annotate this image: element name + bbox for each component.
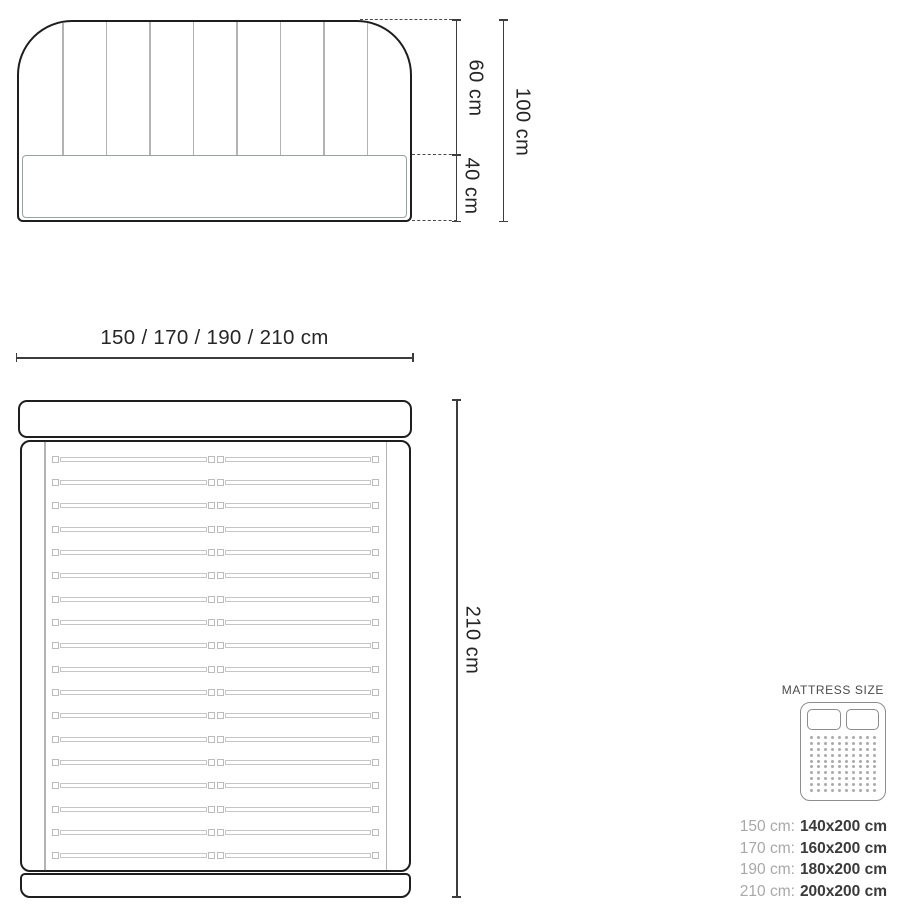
tufting-dot <box>810 777 813 780</box>
slat-bar <box>60 690 207 695</box>
tufting-dot <box>838 742 841 745</box>
tufting-dot <box>852 760 855 763</box>
slat-center-cap <box>208 736 215 743</box>
slat-bar <box>60 527 207 532</box>
tufting-dot <box>824 765 827 768</box>
tufting-dot <box>831 760 834 763</box>
tufting-dot <box>852 777 855 780</box>
tufting-dot <box>831 783 834 786</box>
tufting-dot <box>845 777 848 780</box>
slat-end-cap <box>52 456 59 463</box>
tufting-dot <box>838 754 841 757</box>
tufting-dot <box>845 760 848 763</box>
tufting-dot <box>824 771 827 774</box>
bed-slat <box>52 478 379 486</box>
tufting-dot <box>810 771 813 774</box>
slat-area <box>52 455 379 860</box>
slat-end-cap <box>52 666 59 673</box>
slat-end-cap <box>372 806 379 813</box>
tufting-dot <box>873 765 876 768</box>
slat-bar <box>60 667 207 672</box>
tufting-dot <box>838 771 841 774</box>
pillow-icon <box>846 709 880 730</box>
dimension-tick <box>412 353 414 362</box>
bed-slat <box>52 618 379 626</box>
tufting-dot <box>866 742 869 745</box>
slat-center-cap <box>217 456 224 463</box>
dimension-line-60-40 <box>456 20 458 222</box>
slat-center-cap <box>208 642 215 649</box>
slat-center-cap <box>208 596 215 603</box>
tufting-dot <box>810 765 813 768</box>
bed-width-label: 150 cm: <box>740 818 795 835</box>
tufting-dot <box>866 736 869 739</box>
tufting-dot <box>859 754 862 757</box>
slat-center-cap <box>217 666 224 673</box>
slat-center-cap <box>208 479 215 486</box>
tufting-dot <box>845 748 848 751</box>
tufting-dot <box>824 789 827 792</box>
slat-center-cap <box>217 549 224 556</box>
mattress-size-row: 150 cm:140x200 cm <box>700 816 887 838</box>
mattress-dimensions: 160x200 cm <box>800 840 887 857</box>
tufting-dot <box>831 777 834 780</box>
tufting-dot <box>831 736 834 739</box>
tufting-dot <box>859 789 862 792</box>
bed-slat <box>52 642 379 650</box>
tufting-dot <box>845 742 848 745</box>
tufting-dot <box>852 789 855 792</box>
slat-bar <box>225 667 372 672</box>
slat-bar <box>225 737 372 742</box>
bed-slat <box>52 829 379 837</box>
slat-center-cap <box>217 712 224 719</box>
slat-bar <box>60 457 207 462</box>
slat-end-cap <box>372 572 379 579</box>
tufting-dot <box>873 760 876 763</box>
headboard-top-view <box>18 400 412 438</box>
slat-center-cap <box>208 456 215 463</box>
slat-end-cap <box>52 549 59 556</box>
tufting-dot <box>817 777 820 780</box>
dimension-tick <box>452 221 461 223</box>
mattress-size-row: 170 cm:160x200 cm <box>700 838 887 860</box>
bed-slat <box>52 548 379 556</box>
tufting-dot <box>838 748 841 751</box>
tufting-dot <box>824 754 827 757</box>
tufting-dot <box>838 789 841 792</box>
tufting-dot <box>838 783 841 786</box>
extension-line-bottom <box>412 220 457 221</box>
dim-label-upper-height: 60 cm <box>464 60 487 117</box>
footboard-top-view <box>20 873 411 898</box>
tufting-dot <box>817 771 820 774</box>
tufting-dot <box>845 736 848 739</box>
slat-bar <box>60 550 207 555</box>
tufting-dot <box>817 754 820 757</box>
bed-slat <box>52 595 379 603</box>
dimension-tick <box>452 896 461 898</box>
slat-end-cap <box>372 642 379 649</box>
tufting-dot <box>817 789 820 792</box>
slat-end-cap <box>52 619 59 626</box>
slat-center-cap <box>208 549 215 556</box>
slat-end-cap <box>52 479 59 486</box>
slat-bar <box>225 690 372 695</box>
tufting-dot <box>866 777 869 780</box>
tufting-dot <box>873 748 876 751</box>
tufting-dot <box>817 760 820 763</box>
slat-bar <box>225 620 372 625</box>
slat-bar <box>60 713 207 718</box>
tufting-dot <box>866 760 869 763</box>
bed-base-band <box>22 155 407 218</box>
tufting-dot <box>845 783 848 786</box>
bed-slat <box>52 735 379 743</box>
tufting-dot <box>824 760 827 763</box>
slat-center-cap <box>217 479 224 486</box>
tufting-dot <box>831 771 834 774</box>
slat-bar <box>60 853 207 858</box>
pillow-icon <box>807 709 841 730</box>
tufting-dot <box>817 736 820 739</box>
tufting-dot <box>859 777 862 780</box>
slat-end-cap <box>52 736 59 743</box>
slat-center-cap <box>208 852 215 859</box>
slat-bar <box>60 807 207 812</box>
dimension-tick <box>16 353 18 362</box>
tufting-dot <box>810 789 813 792</box>
slat-end-cap <box>52 689 59 696</box>
tufting-dot <box>831 742 834 745</box>
slat-center-cap <box>217 642 224 649</box>
slat-end-cap <box>52 806 59 813</box>
slat-bar <box>60 760 207 765</box>
headboard-channel-line <box>106 22 108 157</box>
slat-center-cap <box>217 689 224 696</box>
dimension-line-210 <box>456 400 458 897</box>
slat-center-cap <box>208 689 215 696</box>
tufting-dot <box>859 742 862 745</box>
tufting-dot <box>859 748 862 751</box>
dimension-tick <box>452 154 461 156</box>
slat-bar <box>225 457 372 462</box>
tufting-dot <box>831 765 834 768</box>
tufting-dot <box>845 765 848 768</box>
tufting-dot <box>810 736 813 739</box>
bed-slat <box>52 758 379 766</box>
tufting-dot <box>810 748 813 751</box>
tufting-dot <box>859 771 862 774</box>
tufting-dot <box>838 777 841 780</box>
tufting-dot <box>852 742 855 745</box>
slat-end-cap <box>52 572 59 579</box>
slat-center-cap <box>208 526 215 533</box>
tufting-dot <box>873 789 876 792</box>
side-rail-right <box>386 442 388 870</box>
slat-bar <box>225 597 372 602</box>
bed-slat <box>52 782 379 790</box>
bed-width-label: 170 cm: <box>740 840 795 857</box>
slat-bar <box>225 527 372 532</box>
slat-bar <box>60 573 207 578</box>
tufting-dot <box>810 783 813 786</box>
slat-end-cap <box>52 852 59 859</box>
tufting-dot <box>873 771 876 774</box>
tufting-dot <box>852 783 855 786</box>
tufting-dot <box>859 765 862 768</box>
bed-width-label: 190 cm: <box>740 861 795 878</box>
tufting-dot <box>866 754 869 757</box>
slat-end-cap <box>372 596 379 603</box>
slat-end-cap <box>372 712 379 719</box>
double-mattress-icon <box>800 702 886 801</box>
dim-label-length: 210 cm <box>461 606 484 675</box>
tufting-dot <box>824 777 827 780</box>
slat-end-cap <box>372 759 379 766</box>
side-rail-left <box>44 442 46 870</box>
tufting-dot <box>873 742 876 745</box>
dimension-line-100 <box>503 20 505 222</box>
slat-bar <box>225 503 372 508</box>
tufting-dot <box>873 777 876 780</box>
slat-end-cap <box>372 736 379 743</box>
tufting-dot <box>852 748 855 751</box>
slat-bar <box>60 620 207 625</box>
tufting-dot <box>824 742 827 745</box>
tufting-dot <box>838 736 841 739</box>
dim-label-lower-height: 40 cm <box>460 158 483 215</box>
slat-center-cap <box>208 502 215 509</box>
tufting-dot <box>810 760 813 763</box>
bed-frame-top-view <box>20 440 411 872</box>
slat-bar <box>225 643 372 648</box>
tufting-dot <box>824 748 827 751</box>
slat-center-cap <box>208 806 215 813</box>
tufting-dot <box>824 736 827 739</box>
slat-bar <box>225 807 372 812</box>
headboard-channel-line <box>193 22 195 157</box>
slat-center-cap <box>217 502 224 509</box>
bed-dimension-diagram: 60 cm 40 cm 100 cm 150 / 170 / 190 / 210… <box>0 0 900 920</box>
tufting-dot <box>852 765 855 768</box>
tufting-dot <box>873 783 876 786</box>
slat-center-cap <box>217 736 224 743</box>
headboard-channel-line <box>149 22 151 157</box>
bed-slat <box>52 455 379 463</box>
slat-end-cap <box>372 689 379 696</box>
bed-slat <box>52 852 379 860</box>
dim-label-widths: 150 / 170 / 190 / 210 cm <box>16 326 413 350</box>
slat-center-cap <box>208 572 215 579</box>
slat-bar <box>225 550 372 555</box>
tufting-dot <box>866 789 869 792</box>
slat-center-cap <box>217 596 224 603</box>
mattress-size-list: 150 cm:140x200 cm 170 cm:160x200 cm 190 … <box>700 816 887 903</box>
slat-end-cap <box>372 782 379 789</box>
slat-center-cap <box>208 619 215 626</box>
mattress-dimensions: 140x200 cm <box>800 818 887 835</box>
headboard-front-elevation <box>17 20 412 222</box>
mattress-size-title: MATTRESS SIZE <box>742 683 884 697</box>
headboard-channel-line <box>62 22 64 157</box>
headboard-channel-line <box>236 22 238 157</box>
extension-line-top <box>360 19 457 20</box>
tufting-dot <box>873 736 876 739</box>
mattress-size-row: 190 cm:180x200 cm <box>700 859 887 881</box>
slat-end-cap <box>52 642 59 649</box>
slat-center-cap <box>217 806 224 813</box>
tufting-dot <box>866 765 869 768</box>
slat-center-cap <box>217 572 224 579</box>
slat-end-cap <box>372 526 379 533</box>
tufting-dot <box>810 754 813 757</box>
tufting-dot <box>852 771 855 774</box>
slat-center-cap <box>217 782 224 789</box>
mattress-tufting-dots <box>808 735 878 793</box>
tufting-dot <box>845 789 848 792</box>
dimension-tick <box>452 399 461 401</box>
slat-bar <box>60 643 207 648</box>
slat-bar <box>60 480 207 485</box>
bed-slat <box>52 525 379 533</box>
slat-end-cap <box>372 502 379 509</box>
tufting-dot <box>817 748 820 751</box>
slat-bar <box>225 830 372 835</box>
tufting-dot <box>831 789 834 792</box>
dimension-tick <box>452 19 461 21</box>
slat-center-cap <box>217 619 224 626</box>
bed-width-label: 210 cm: <box>740 883 795 900</box>
bed-slat <box>52 712 379 720</box>
slat-center-cap <box>217 852 224 859</box>
mattress-dimensions: 180x200 cm <box>800 861 887 878</box>
slat-center-cap <box>208 759 215 766</box>
tufting-dot <box>845 754 848 757</box>
slat-end-cap <box>52 759 59 766</box>
bed-slat <box>52 502 379 510</box>
headboard-channel-line <box>280 22 282 157</box>
slat-bar <box>60 783 207 788</box>
tufting-dot <box>845 771 848 774</box>
slat-end-cap <box>52 712 59 719</box>
dimension-tick <box>499 221 508 223</box>
slat-end-cap <box>372 852 379 859</box>
tufting-dot <box>859 760 862 763</box>
tufting-dot <box>866 783 869 786</box>
slat-end-cap <box>52 526 59 533</box>
slat-end-cap <box>372 666 379 673</box>
slat-bar <box>60 737 207 742</box>
pillows <box>807 709 879 730</box>
slat-end-cap <box>372 456 379 463</box>
dimension-line-width <box>16 357 413 359</box>
dim-label-total-height: 100 cm <box>511 88 534 157</box>
tufting-dot <box>817 783 820 786</box>
slat-end-cap <box>52 502 59 509</box>
extension-line-middle <box>412 154 457 155</box>
bed-slat <box>52 805 379 813</box>
slat-bar <box>225 853 372 858</box>
headboard-channel-line <box>323 22 325 157</box>
tufting-dot <box>866 771 869 774</box>
slat-bar <box>225 783 372 788</box>
tufting-dot <box>859 783 862 786</box>
tufting-dot <box>873 754 876 757</box>
slat-end-cap <box>372 619 379 626</box>
tufting-dot <box>831 754 834 757</box>
slat-center-cap <box>208 712 215 719</box>
headboard-channel-line <box>367 22 369 157</box>
slat-end-cap <box>52 829 59 836</box>
slat-center-cap <box>217 759 224 766</box>
bed-slat <box>52 688 379 696</box>
slat-center-cap <box>208 666 215 673</box>
slat-bar <box>60 503 207 508</box>
tufting-dot <box>824 783 827 786</box>
slat-center-cap <box>217 526 224 533</box>
slat-end-cap <box>372 479 379 486</box>
slat-bar <box>225 760 372 765</box>
slat-bar <box>60 830 207 835</box>
tufting-dot <box>810 742 813 745</box>
tufting-dot <box>852 754 855 757</box>
slat-end-cap <box>52 782 59 789</box>
slat-bar <box>225 573 372 578</box>
tufting-dot <box>866 748 869 751</box>
slat-bar <box>225 713 372 718</box>
slat-end-cap <box>52 596 59 603</box>
tufting-dot <box>859 736 862 739</box>
slat-bar <box>60 597 207 602</box>
tufting-dot <box>838 765 841 768</box>
tufting-dot <box>831 748 834 751</box>
slat-end-cap <box>372 829 379 836</box>
bed-slat <box>52 665 379 673</box>
slat-center-cap <box>208 829 215 836</box>
slat-end-cap <box>372 549 379 556</box>
slat-center-cap <box>217 829 224 836</box>
slat-center-cap <box>208 782 215 789</box>
tufting-dot <box>817 742 820 745</box>
bed-slat <box>52 572 379 580</box>
slat-bar <box>225 480 372 485</box>
tufting-dot <box>817 765 820 768</box>
mattress-dimensions: 200x200 cm <box>800 883 887 900</box>
dimension-tick <box>499 19 508 21</box>
tufting-dot <box>852 736 855 739</box>
mattress-size-row: 210 cm:200x200 cm <box>700 881 887 903</box>
tufting-dot <box>838 760 841 763</box>
